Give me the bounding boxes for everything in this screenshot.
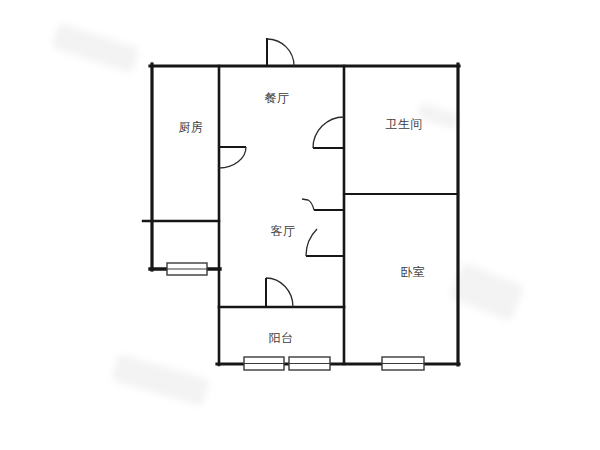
bedroom-door-arc [306, 229, 317, 256]
balcony-door-arc [266, 278, 293, 307]
room-label-living: 客厅 [271, 223, 296, 240]
kitchen-door-arc [219, 147, 246, 168]
floorplan-svg [0, 0, 600, 450]
room-label-kitchen: 厨房 [179, 119, 204, 136]
hall-small-door-arc [302, 199, 314, 210]
floor-plan-page: 厨房 餐厅 卫生间 客厅 卧室 阳台 [0, 0, 600, 450]
room-label-dining: 餐厅 [265, 90, 290, 107]
bathroom-door-arc [313, 117, 344, 148]
room-label-bedroom: 卧室 [401, 264, 426, 281]
entry-door-arc [267, 39, 294, 66]
room-label-bathroom: 卫生间 [385, 116, 423, 133]
room-label-balcony: 阳台 [269, 330, 294, 347]
